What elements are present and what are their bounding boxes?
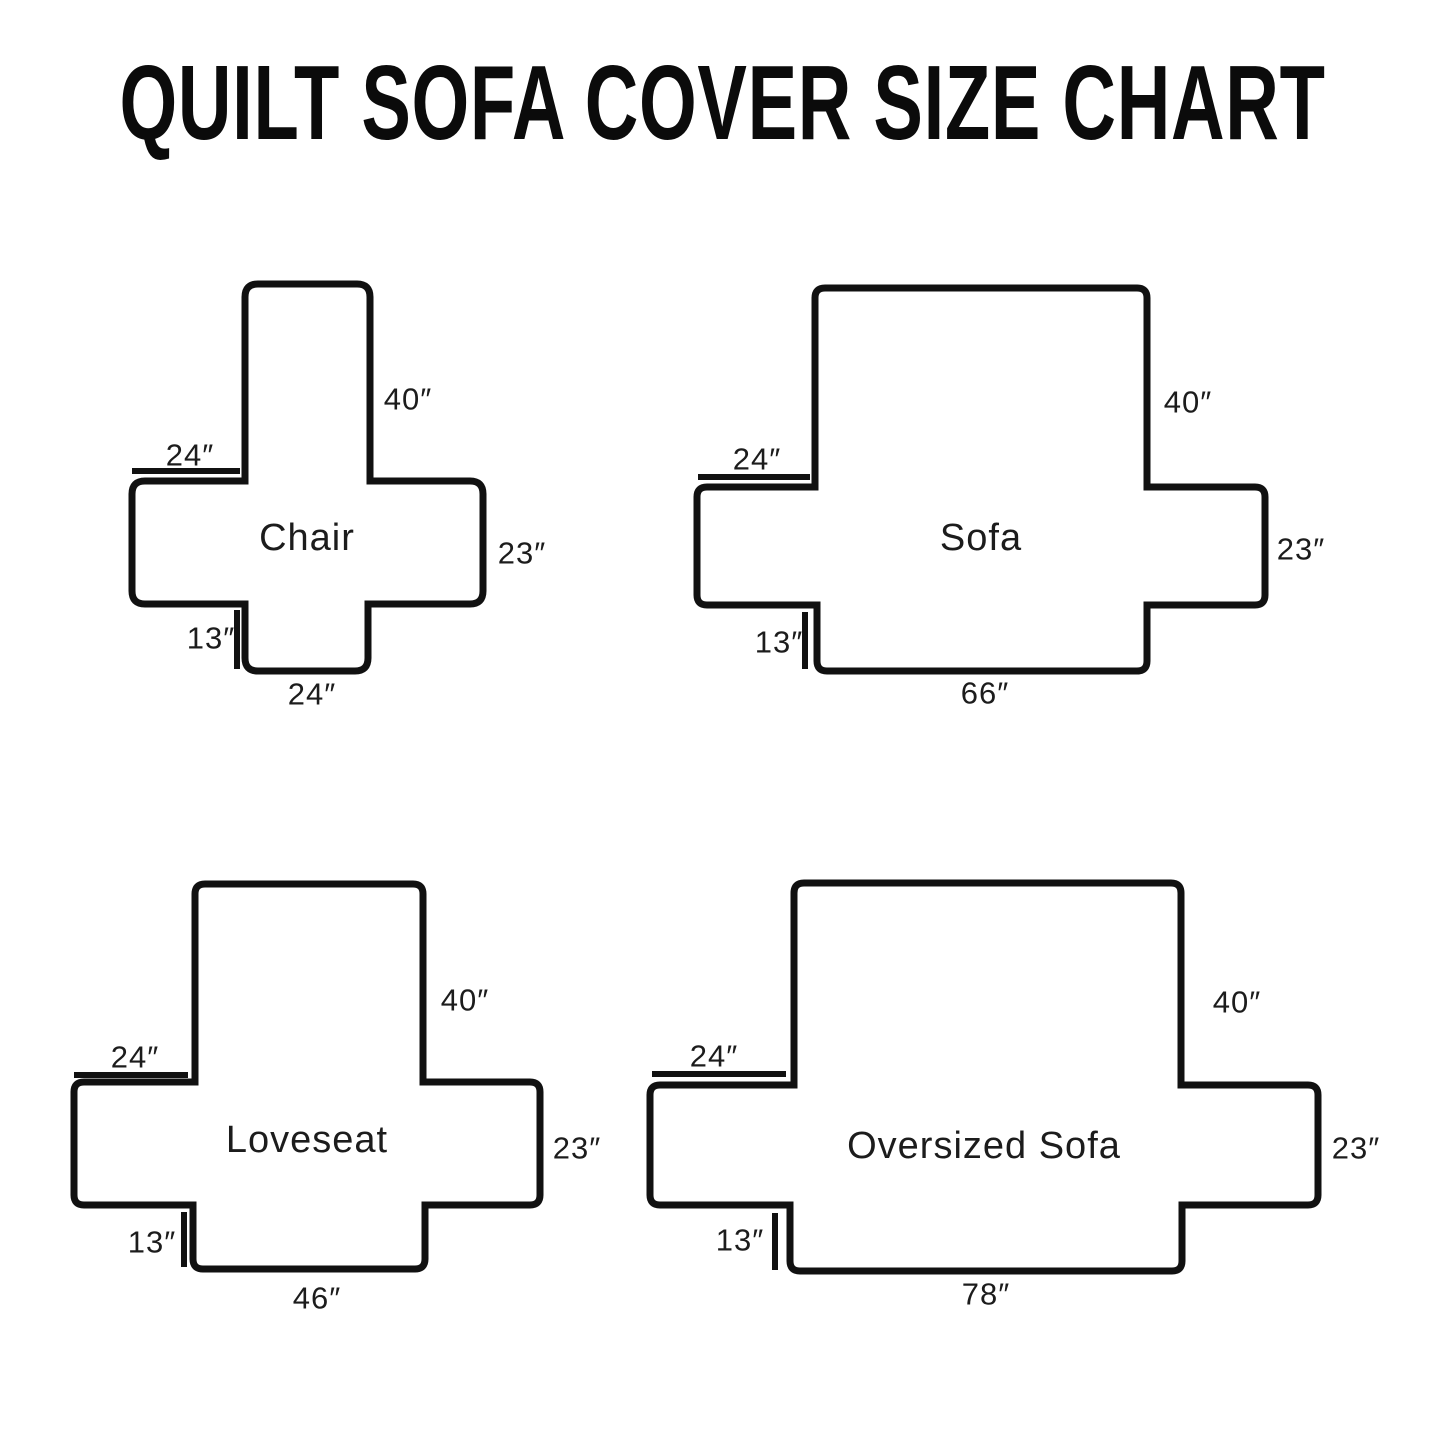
oversized-sofa-side-depth-label: 23″ xyxy=(1332,1133,1380,1164)
loveseat-back-height-label: 40″ xyxy=(441,985,489,1016)
sofa-skirt-height-label: 13″ xyxy=(755,627,803,658)
loveseat-bottom-width-label: 46″ xyxy=(293,1283,341,1314)
oversized-sofa-name-label: Oversized Sofa xyxy=(847,1127,1121,1165)
loveseat-side-depth-label: 23″ xyxy=(553,1133,601,1164)
loveseat-skirt-height-label: 13″ xyxy=(128,1227,176,1258)
oversized-sofa-bottom-width-label: 78″ xyxy=(962,1279,1010,1310)
chair-skirt-height-label: 13″ xyxy=(187,623,235,654)
oversized-sofa-skirt-height-label: 13″ xyxy=(716,1225,764,1256)
chair-arm-width-label: 24″ xyxy=(166,440,214,471)
size-chart-canvas xyxy=(0,0,1445,1435)
sofa-name-label: Sofa xyxy=(940,519,1022,557)
chair-side-depth-label: 23″ xyxy=(498,538,546,569)
chair-bottom-width-label: 24″ xyxy=(288,679,336,710)
size-chart-page: QUILT SOFA COVER SIZE CHART 40″ 24″ Chai… xyxy=(0,0,1445,1435)
sofa-bottom-width-label: 66″ xyxy=(961,678,1009,709)
chair-name-label: Chair xyxy=(259,519,355,557)
chair-back-height-label: 40″ xyxy=(384,384,432,415)
sofa-side-depth-label: 23″ xyxy=(1277,534,1325,565)
sofa-arm-width-label: 24″ xyxy=(733,444,781,475)
loveseat-name-label: Loveseat xyxy=(226,1121,388,1159)
oversized-sofa-arm-width-label: 24″ xyxy=(690,1041,738,1072)
loveseat-arm-width-label: 24″ xyxy=(111,1042,159,1073)
sofa-back-height-label: 40″ xyxy=(1164,387,1212,418)
oversized-sofa-back-height-label: 40″ xyxy=(1213,987,1261,1018)
chair-cover-outline xyxy=(132,284,483,671)
